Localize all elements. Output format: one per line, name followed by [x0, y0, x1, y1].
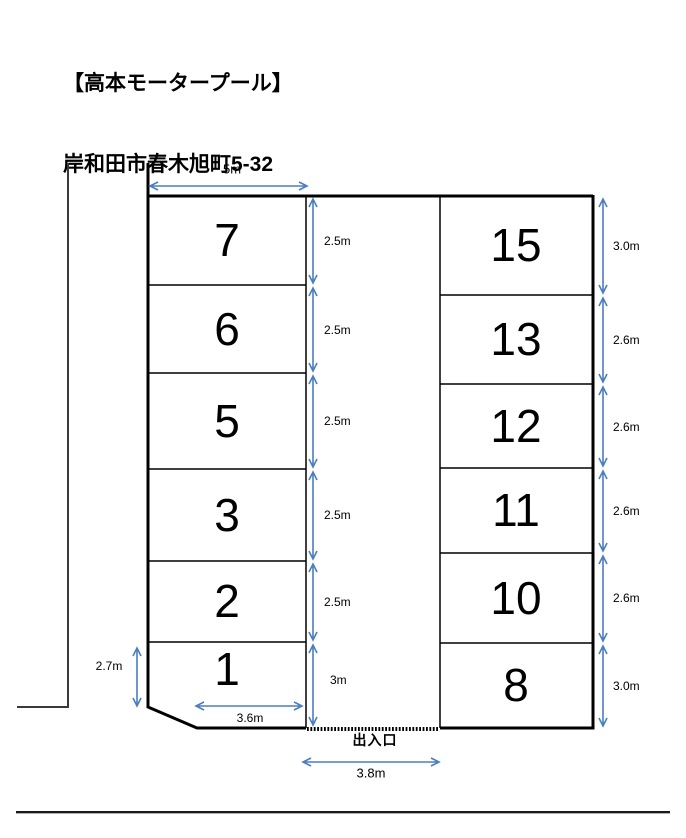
parking-space-10-number: 10	[490, 575, 541, 621]
dim-arrow-space13	[599, 298, 607, 382]
depth-label-space10: 2.6m	[613, 592, 640, 604]
bottom-divider-rule	[16, 811, 670, 813]
parking-space-13-number: 13	[490, 316, 541, 362]
depth-label-space5: 2.5m	[324, 415, 351, 427]
parking-space-12-number: 12	[490, 403, 541, 449]
parking-map-page: 【高本モータープール】 岸和田市春木旭町5-32	[0, 0, 686, 838]
road-boundary-line	[17, 163, 68, 707]
parking-space-15-number: 15	[490, 222, 541, 268]
dim-arrow-space10	[599, 556, 607, 641]
parking-space-8-number: 8	[503, 662, 529, 708]
dim-arrow-space1-width	[196, 702, 302, 710]
depth-label-space8: 3.0m	[613, 680, 640, 692]
parking-space-6-number: 6	[214, 306, 240, 352]
dim-arrow-space6	[309, 288, 317, 371]
dim-arrow-space15	[599, 199, 607, 293]
dim-arrow-space7	[309, 199, 317, 283]
depth-label-space12: 2.6m	[613, 421, 640, 433]
depth-label-space2: 2.5m	[324, 596, 351, 608]
depth-label-space1: 3m	[330, 674, 347, 686]
dim-arrow-space5	[309, 376, 317, 467]
dim-arrow-space12	[599, 387, 607, 466]
depth-label-space11: 2.6m	[613, 505, 640, 517]
dim-arrow-space11	[599, 471, 607, 551]
space1-width-label: 3.6m	[237, 712, 264, 724]
dim-arrow-space1	[309, 645, 317, 725]
entrance-width-label: 3.8m	[357, 767, 386, 780]
parking-space-2-number: 2	[214, 578, 240, 624]
depth-label-space15: 3.0m	[613, 240, 640, 252]
parking-space-5-number: 5	[214, 398, 240, 444]
dim-arrow-space2	[309, 564, 317, 640]
dim-arrow-left-edge	[133, 648, 141, 706]
depth-label-space13: 2.6m	[613, 334, 640, 346]
top-width-label: 5m	[223, 163, 241, 176]
depth-label-space7: 2.5m	[324, 235, 351, 247]
parking-space-3-number: 3	[214, 492, 240, 538]
dim-arrow-space3	[309, 472, 317, 559]
left-side-label: 2.7m	[96, 660, 123, 672]
parking-space-11-number: 11	[492, 487, 540, 533]
parking-space-1-number: 1	[214, 646, 240, 692]
depth-label-space3: 2.5m	[324, 509, 351, 521]
dim-arrow-space8	[599, 646, 607, 726]
entrance-label: 出入口	[353, 733, 398, 747]
parking-space-7-number: 7	[214, 217, 240, 263]
depth-label-space6: 2.5m	[324, 324, 351, 336]
lot-outline-right-bottom	[440, 195, 593, 728]
dim-arrow-top-width	[150, 182, 307, 190]
